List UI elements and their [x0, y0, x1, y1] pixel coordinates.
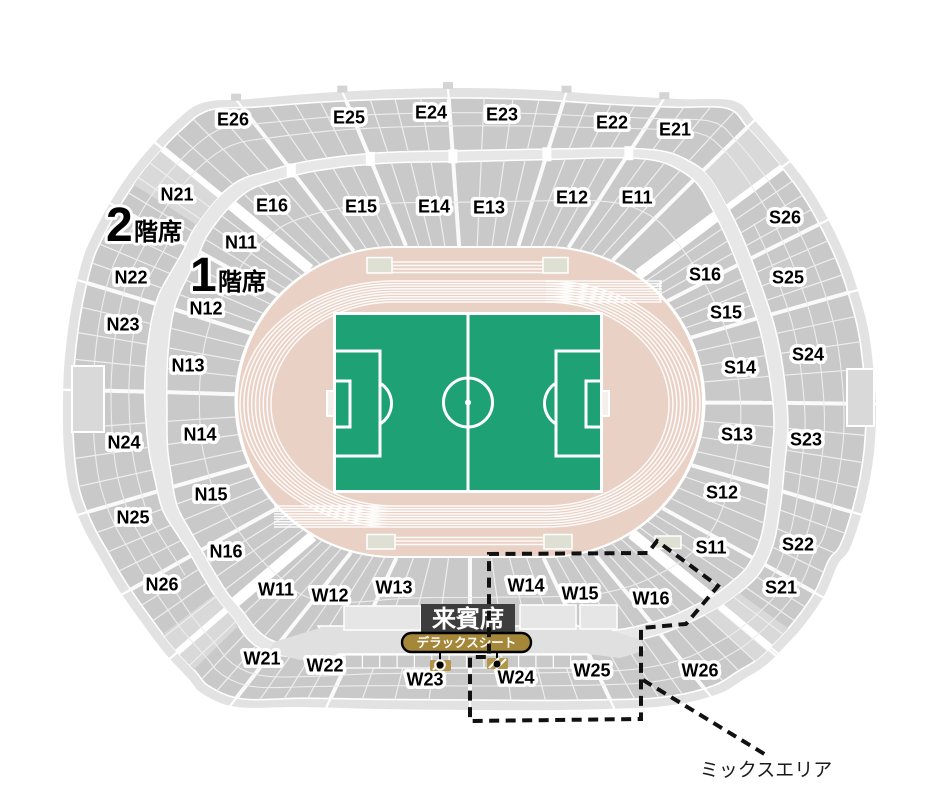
- svg-text:1: 1: [190, 249, 217, 302]
- svg-text:W15: W15: [561, 584, 598, 604]
- svg-text:W11: W11: [258, 580, 294, 600]
- svg-text:E16: E16: [256, 196, 288, 216]
- svg-text:N22: N22: [114, 268, 147, 288]
- svg-text:W24: W24: [497, 668, 534, 688]
- svg-text:S11: S11: [695, 538, 726, 558]
- svg-text:W22: W22: [306, 656, 343, 676]
- svg-text:来賓席: 来賓席: [432, 605, 504, 633]
- svg-text:S26: S26: [769, 208, 801, 228]
- svg-text:W23: W23: [406, 670, 443, 690]
- svg-text:N16: N16: [209, 542, 242, 562]
- svg-text:E12: E12: [556, 188, 588, 208]
- svg-text:W14: W14: [507, 576, 544, 596]
- svg-text:W16: W16: [632, 589, 669, 609]
- svg-text:N14: N14: [183, 425, 216, 445]
- svg-text:S24: S24: [792, 345, 824, 365]
- svg-text:W25: W25: [573, 661, 610, 681]
- svg-text:E22: E22: [596, 113, 628, 133]
- svg-text:S13: S13: [721, 425, 753, 445]
- svg-text:S16: S16: [689, 265, 721, 285]
- svg-text:S25: S25: [772, 268, 804, 288]
- svg-text:E24: E24: [415, 103, 447, 123]
- svg-text:E25: E25: [333, 108, 365, 128]
- svg-text:N11: N11: [225, 233, 257, 253]
- svg-text:N13: N13: [171, 356, 204, 376]
- svg-text:S15: S15: [710, 303, 742, 323]
- svg-text:E23: E23: [486, 105, 518, 125]
- svg-text:N25: N25: [116, 508, 149, 528]
- svg-text:2: 2: [106, 199, 133, 252]
- svg-text:N24: N24: [107, 433, 140, 453]
- svg-text:S21: S21: [765, 578, 797, 598]
- svg-text:階席: 階席: [134, 218, 182, 246]
- svg-text:S12: S12: [706, 483, 738, 503]
- svg-text:N23: N23: [106, 315, 139, 335]
- svg-text:E21: E21: [659, 120, 691, 140]
- svg-text:N26: N26: [145, 575, 178, 595]
- svg-text:W26: W26: [681, 661, 718, 681]
- svg-text:E11: E11: [621, 188, 652, 208]
- svg-text:E26: E26: [217, 110, 249, 130]
- svg-text:E14: E14: [418, 197, 450, 217]
- svg-text:ミックスエリア: ミックスエリア: [700, 759, 832, 781]
- svg-text:W13: W13: [375, 578, 412, 598]
- svg-text:S23: S23: [790, 430, 822, 450]
- svg-text:階席: 階席: [218, 268, 266, 296]
- svg-text:W12: W12: [311, 586, 348, 606]
- svg-text:W21: W21: [243, 649, 280, 669]
- svg-text:N15: N15: [194, 485, 227, 505]
- svg-text:E15: E15: [345, 197, 377, 217]
- svg-text:S22: S22: [782, 535, 814, 555]
- svg-text:S14: S14: [724, 358, 756, 378]
- svg-text:E13: E13: [473, 198, 505, 218]
- svg-text:デラックスシート: デラックスシート: [417, 635, 517, 650]
- svg-text:N21: N21: [160, 185, 193, 205]
